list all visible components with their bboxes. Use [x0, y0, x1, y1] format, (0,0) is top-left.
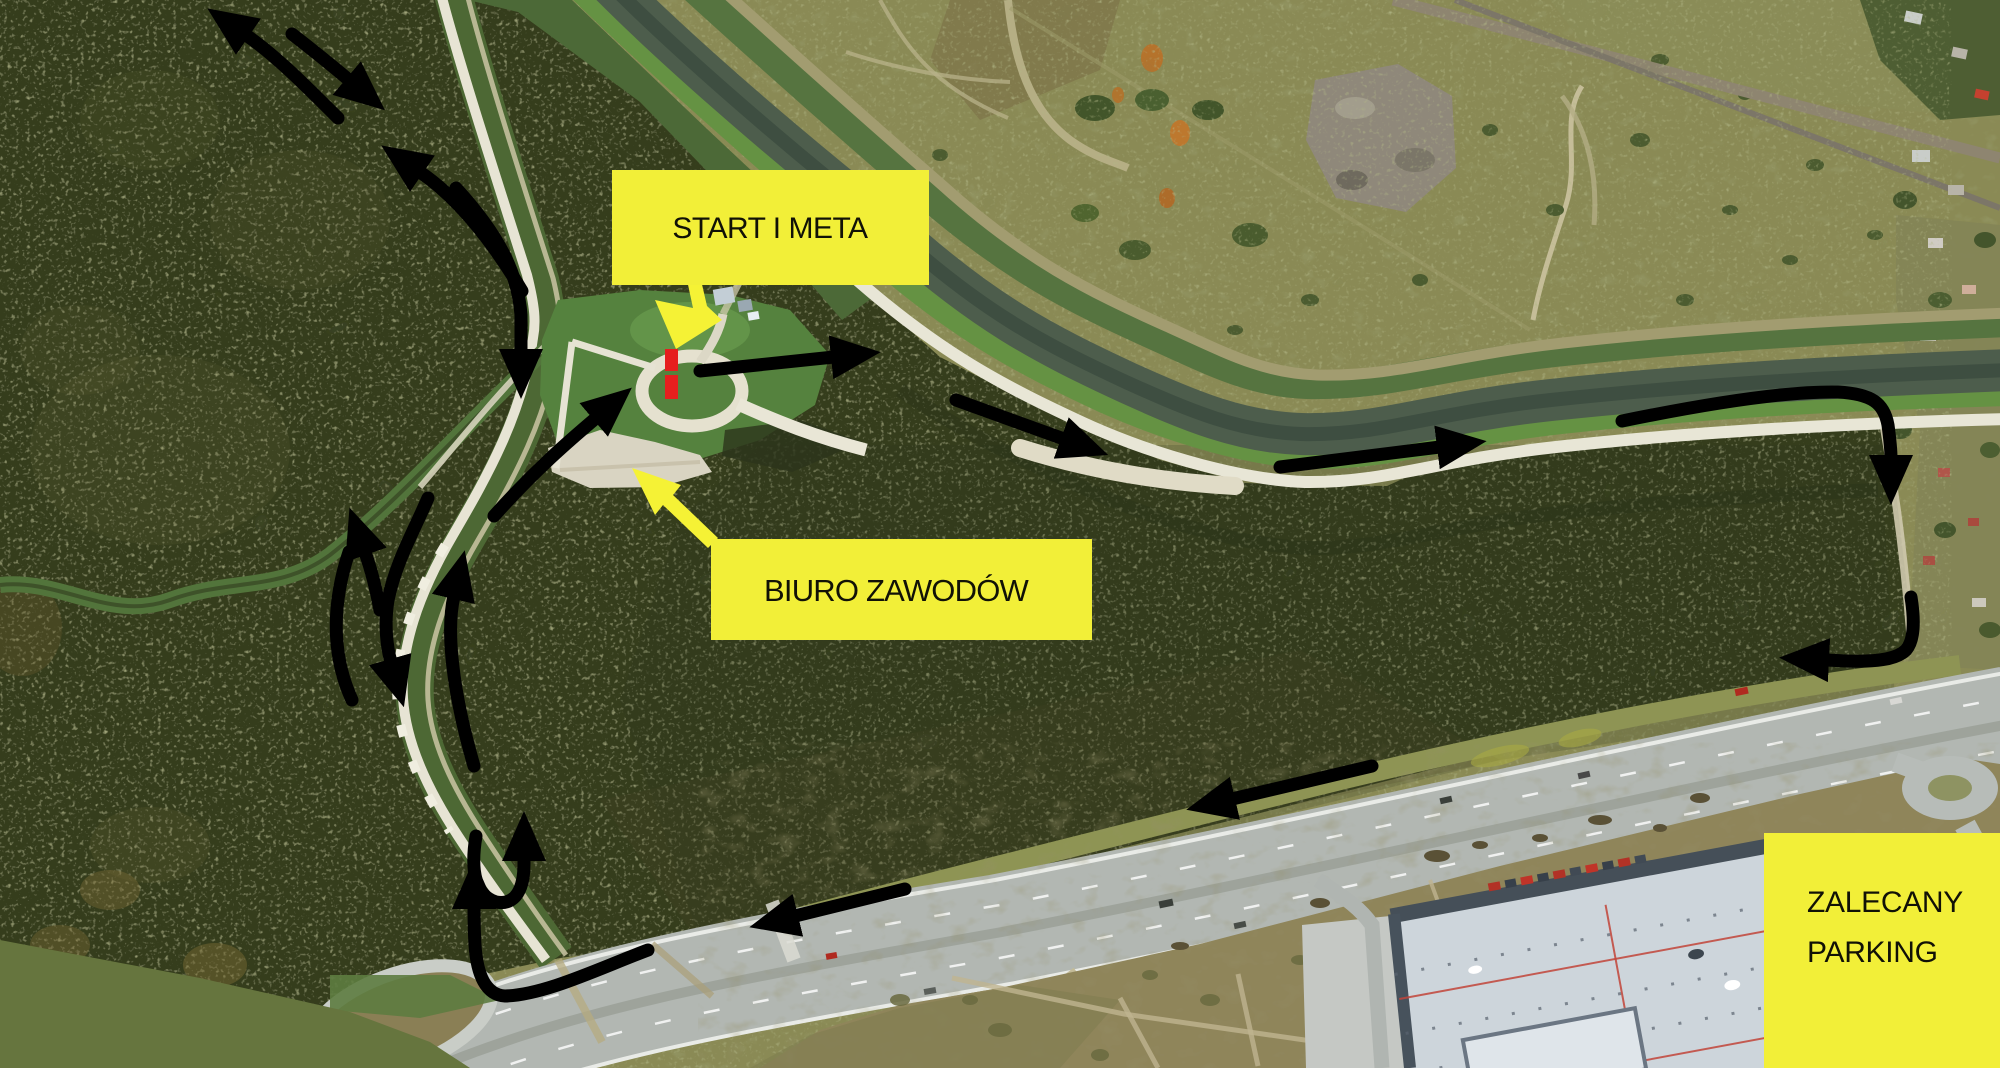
svg-text:ZALECANY: ZALECANY: [1807, 886, 1963, 919]
svg-text:BIURO ZAWODÓW: BIURO ZAWODÓW: [764, 573, 1030, 608]
svg-text:START I META: START I META: [672, 212, 868, 245]
svg-text:PARKING: PARKING: [1807, 936, 1938, 969]
